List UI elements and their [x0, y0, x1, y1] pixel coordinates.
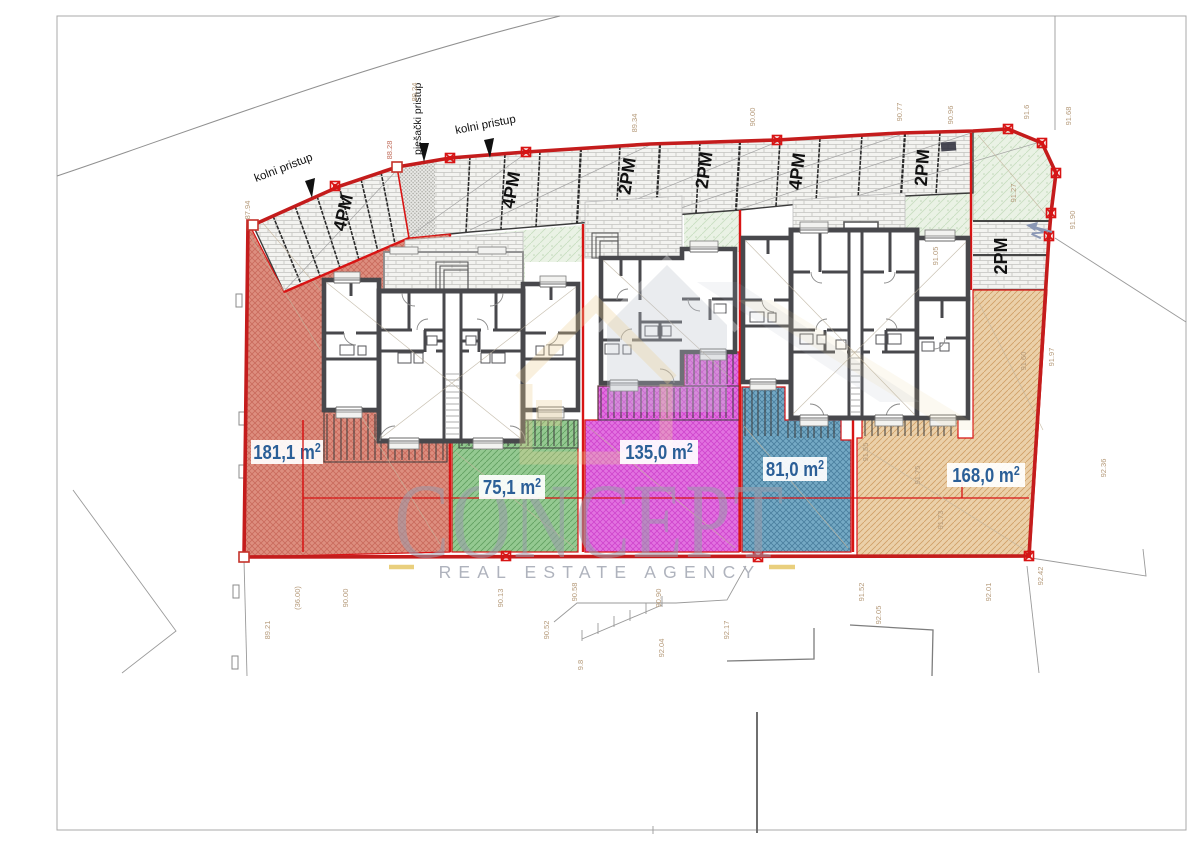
svg-text:75,1 m2: 75,1 m2: [483, 475, 542, 498]
svg-text:91.27: 91.27: [1009, 184, 1018, 203]
svg-text:135,0 m2: 135,0 m2: [625, 440, 693, 463]
svg-text:90.52: 90.52: [542, 621, 551, 640]
svg-text:91.75: 91.75: [913, 466, 922, 485]
svg-text:92.05: 92.05: [874, 606, 883, 625]
svg-text:92.36: 92.36: [1099, 459, 1108, 478]
svg-text:91.55: 91.55: [861, 443, 870, 462]
svg-text:90.77: 90.77: [895, 103, 904, 122]
svg-text:(36.00): (36.00): [293, 586, 302, 610]
svg-text:90.00: 90.00: [341, 589, 350, 608]
svg-text:89.24: 89.24: [410, 83, 419, 102]
svg-text:181,1 m2: 181,1 m2: [253, 440, 321, 463]
svg-text:90.96: 90.96: [946, 106, 955, 125]
svg-text:91.90: 91.90: [1068, 211, 1077, 230]
svg-text:91.05: 91.05: [931, 247, 940, 266]
svg-text:88.28: 88.28: [385, 141, 394, 160]
svg-text:92.42: 92.42: [1036, 567, 1045, 586]
svg-text:92.17: 92.17: [722, 621, 731, 640]
svg-text:91.73: 91.73: [936, 511, 945, 530]
svg-text:92.04: 92.04: [657, 639, 666, 658]
svg-text:87.94: 87.94: [243, 201, 252, 220]
svg-text:91.6: 91.6: [1022, 105, 1031, 120]
svg-text:90.13: 90.13: [496, 589, 505, 608]
svg-text:9.8: 9.8: [576, 660, 585, 670]
svg-text:91.60: 91.60: [1019, 352, 1028, 371]
svg-text:2PM: 2PM: [911, 148, 934, 186]
svg-text:168,0 m2: 168,0 m2: [952, 463, 1020, 486]
svg-text:92.01: 92.01: [984, 583, 993, 602]
svg-text:81,0 m2: 81,0 m2: [766, 457, 825, 480]
svg-text:2PM: 2PM: [991, 237, 1011, 274]
svg-text:90.00: 90.00: [748, 108, 757, 127]
svg-text:91.68: 91.68: [1064, 107, 1073, 126]
svg-text:89.21: 89.21: [263, 621, 272, 640]
svg-text:90.90: 90.90: [654, 589, 663, 608]
svg-text:91.52: 91.52: [857, 583, 866, 602]
svg-text:90.58: 90.58: [570, 583, 579, 602]
svg-text:89.34: 89.34: [630, 114, 639, 133]
svg-text:REAL ESTATE AGENCY: REAL ESTATE AGENCY: [439, 562, 762, 582]
svg-text:91.97: 91.97: [1047, 348, 1056, 367]
